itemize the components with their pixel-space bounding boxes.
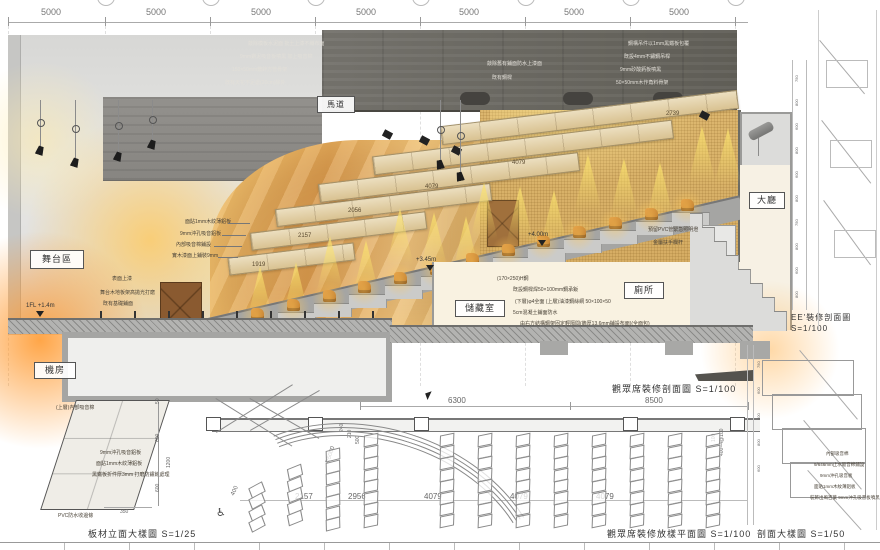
toilet-label-text: 廁所	[634, 285, 654, 295]
tick	[570, 402, 571, 410]
grid-tick	[105, 17, 106, 26]
grid-bubble-icon	[202, 0, 220, 6]
rigging-ring-icon	[72, 125, 80, 133]
plan-seat	[478, 513, 493, 528]
storage-room-label-text: 儲藏室	[465, 303, 495, 313]
plan-dim: 6300	[448, 397, 466, 405]
annotation: (上層)內部吸音棉	[56, 406, 94, 411]
stage-area-label: 舞台區	[30, 250, 84, 269]
detail-strip-line	[876, 10, 877, 530]
plan-seat	[706, 513, 721, 528]
panel-dim: 350	[120, 510, 128, 515]
projector-stand	[758, 138, 759, 156]
tick	[360, 402, 361, 410]
annotation: 預留PVC管緊急照明燈	[648, 228, 698, 233]
seating-step	[564, 239, 602, 253]
floor-post	[100, 311, 102, 318]
annotation: 9mm沖孔吸音板	[820, 474, 853, 479]
lobby-label-text: 大廳	[757, 195, 777, 205]
annotation: 金屬扶手欄杆	[653, 241, 683, 246]
ee-caption-line2: S=1/100	[791, 325, 828, 333]
seat-icon	[573, 226, 586, 238]
ee-dim-label: 800	[795, 195, 799, 202]
machine-room	[62, 332, 392, 402]
annotation: 9/646mm止水吸音棉鋪設	[814, 463, 864, 468]
detail-step-rect	[830, 140, 872, 168]
storage-room-label: 儲藏室	[455, 300, 505, 317]
annotation: 面貼1mm木紋薄鋁板	[96, 462, 142, 467]
detail50-dim-label: 600	[757, 387, 761, 394]
stage-area-label-text: 舞台區	[42, 254, 72, 264]
baffle-dim-label: 4079	[425, 184, 438, 190]
rigging-ring-icon	[457, 132, 465, 140]
level-mark-stage: 1FL +1.4m	[26, 303, 55, 309]
baffle-dim-label: 2739	[666, 111, 679, 117]
seat-icon	[287, 299, 300, 311]
plan-top-dim-line	[360, 406, 748, 407]
rigging-ring-icon	[115, 122, 123, 130]
seating-step	[528, 248, 566, 262]
downlight-fixture-icon	[460, 92, 490, 105]
ee-dim-label: 600	[795, 123, 799, 130]
annotation: 敲除舊有鋪面防水上漆面	[487, 62, 542, 67]
grid-tick	[210, 17, 211, 26]
baffle-dim-label: 2056	[348, 208, 361, 214]
annotation: PVC防水收邊條	[58, 514, 93, 519]
grid-bubble-icon	[307, 0, 325, 6]
leader-line	[228, 223, 250, 224]
grid-tick	[420, 17, 421, 26]
roof-wedge	[695, 370, 753, 381]
ee-dim-label: 600	[795, 267, 799, 274]
seating-step	[349, 294, 387, 308]
seating-step	[314, 303, 352, 317]
annotation: 敲除模板水泥面 批土上漆不織布面	[248, 42, 324, 47]
floor-post	[372, 311, 374, 318]
annotation: 既有基礎鋪面	[103, 302, 133, 307]
annotation: 150×50mm鍍鋅方管骨架	[232, 68, 287, 73]
grid-tick	[8, 17, 9, 26]
plan-dim: 8500	[645, 397, 663, 405]
grid-tick	[735, 17, 736, 26]
detail50-step	[772, 394, 862, 430]
annotation: 內部吸音棉鋪設	[176, 243, 211, 248]
floor-post	[202, 311, 204, 318]
detail-step-rect	[826, 60, 868, 88]
detail50-dim-label: 750	[757, 361, 761, 368]
grid-tick	[315, 17, 316, 26]
seat-icon	[502, 244, 515, 256]
floor-post	[304, 311, 306, 318]
annotation: 9mm沖孔吸音鋁板	[180, 232, 221, 237]
detail50-line	[753, 345, 754, 525]
floor-post	[270, 311, 272, 318]
plan-seat	[630, 513, 645, 528]
seat-icon	[323, 290, 336, 302]
tick	[748, 402, 749, 410]
seat-icon	[358, 281, 371, 293]
ee-caption-line1: EE'裝修剖面圖	[791, 314, 851, 322]
detail-step-rect	[834, 230, 876, 258]
baffle-dim-label: 4079	[512, 160, 525, 166]
rigging-ring-icon	[37, 119, 45, 127]
architectural-drawing-sheet: 5000500050005000500050005000 馬道 1919 215…	[0, 0, 880, 550]
grid-bubble-icon	[727, 0, 745, 6]
panel-dim: 50	[156, 398, 161, 404]
machine-room-label-text: 機房	[45, 365, 65, 375]
grid-dim-label: 5000	[356, 8, 376, 17]
floor-post	[134, 311, 136, 318]
detail50-caption: 剖面大樣圖 S=1/50	[757, 530, 845, 539]
annotation: 面貼1mm木紋薄鋁板	[185, 220, 231, 225]
annotation: 鋼構吊件以1mm黑鐵板包覆	[628, 42, 689, 47]
panel-dim: 600	[156, 484, 161, 492]
annotation: 9mm矽酸鈣板噴黑	[620, 68, 661, 73]
ee-dim-label: 800	[795, 99, 799, 106]
panel-dim-line	[104, 507, 152, 508]
seating-step	[385, 285, 423, 299]
lobby-label: 大廳	[749, 192, 785, 209]
grid-tick	[525, 17, 526, 26]
grid-bubble-icon	[412, 0, 430, 6]
rigging-ring-icon	[149, 116, 157, 124]
annotation: 內部吸音棉	[826, 452, 849, 457]
footing	[540, 341, 568, 355]
plan-caption: 觀眾席裝修放樣平面圖 S=1/100	[607, 530, 751, 539]
annotation: 面貼1mm木紋薄鋁板	[814, 485, 856, 490]
catwalk-label-text: 馬道	[327, 100, 345, 109]
seat-icon	[394, 272, 407, 284]
catwalk-label: 馬道	[317, 96, 355, 113]
annotation: (170×250)H鋼	[497, 277, 529, 282]
grid-dim-label: 5000	[251, 8, 271, 17]
level-triangle-icon	[426, 265, 434, 271]
lobby-stair-step	[774, 311, 787, 331]
panel-caption: 板材立面大樣圖 S=1/25	[88, 530, 196, 539]
plan-column	[730, 417, 745, 431]
grid-dim-label: 5000	[146, 8, 166, 17]
seating-step	[600, 230, 638, 244]
leader-line	[218, 257, 238, 258]
grid-bubble-icon	[517, 0, 535, 6]
leader-line	[214, 246, 242, 247]
detail-strip-line	[818, 10, 819, 330]
ee-strip-line	[806, 60, 807, 310]
grid-dim-label: 5000	[669, 8, 689, 17]
baffle-dim-label: 2157	[298, 233, 311, 239]
section-caption: 觀眾席裝修剖面圖 S=1/100	[612, 385, 736, 394]
plan-seat	[516, 513, 531, 528]
annotation: 9mm鑽泥吸音板噴黑 加上吸音棉	[240, 55, 313, 60]
rigging-ring-icon	[437, 126, 445, 134]
grid-tick	[630, 17, 631, 26]
plan-seat	[364, 513, 379, 528]
annotation: 既設4mm不鏽鋼吊桿	[624, 55, 670, 60]
grid-dim-line	[8, 22, 748, 23]
seat-icon	[645, 208, 658, 220]
annotation: 5cm混凝土鋪面防水	[513, 311, 557, 316]
annotation: 既有鋼樑	[492, 76, 512, 81]
floor-post	[236, 311, 238, 318]
spotlight-icon	[382, 129, 393, 139]
detail50-dim-label: 400	[757, 413, 761, 420]
floor-post	[168, 311, 170, 318]
level-mark-top: +4.00m	[528, 232, 548, 238]
footing	[665, 341, 693, 355]
plan-dim-rot: 400=4@100	[720, 429, 725, 456]
panel-dim: 1200	[167, 457, 172, 468]
plan-seat	[592, 513, 607, 528]
toilet-label: 廁所	[624, 282, 664, 299]
annotation: (下層)φ4全面 (上層)油漆鋼絲網 50×100×50	[515, 300, 611, 305]
foundation-slab	[390, 325, 753, 343]
detail50-step	[782, 428, 866, 464]
ee-dim-label: 800	[795, 291, 799, 298]
title-block-strip	[0, 542, 880, 550]
annotation: 既設鋼樑焊50×100mm鋼承鈑	[513, 288, 578, 293]
detail50-dim-label: 800	[757, 439, 761, 446]
downlight-fixture-icon	[563, 92, 593, 105]
annotation: 由右方結構鋼架固定輕隔間(牆厚13.6mm鋪設布面)(全面包)	[520, 322, 650, 327]
annotation: 表面上漆	[112, 277, 132, 282]
plan-seat	[668, 513, 683, 528]
ee-strip-line	[792, 60, 793, 310]
detail50-dim-label: 600	[757, 465, 761, 472]
grid-dim-label: 5000	[41, 8, 61, 17]
plan-seat	[554, 513, 569, 528]
machine-room-label: 機房	[34, 362, 76, 379]
ee-dim-label: 800	[795, 243, 799, 250]
grid-dim-label: 5000	[564, 8, 584, 17]
floor-post	[338, 311, 340, 318]
annotation: 既有天花不足處(20cm)除外	[225, 81, 286, 86]
annotation: 舞台木地板架高拋光打磨	[100, 291, 155, 296]
ee-dim-label: 800	[795, 147, 799, 154]
north-arrow-icon: ◤	[424, 389, 434, 402]
detail50-step	[762, 360, 854, 396]
ee-dim-label: 750	[795, 75, 799, 82]
seat-icon	[681, 199, 694, 211]
stage-left-wall	[8, 35, 21, 335]
annotation: 實木漆面上鋪裝9mm	[172, 254, 218, 259]
annotation: 9mm沖孔吸音鋁板	[100, 451, 141, 456]
annotation: 50×50mm木作角料骨架	[616, 81, 668, 86]
level-triangle-icon	[538, 240, 546, 246]
seat-icon	[609, 217, 622, 229]
grid-bubble-icon	[97, 0, 115, 6]
ee-dim-label: 600	[795, 171, 799, 178]
projection-room	[740, 112, 792, 169]
plan-column	[623, 417, 638, 431]
panel-dim: 600	[156, 434, 161, 442]
plan-column	[414, 417, 429, 431]
detail50-line	[747, 345, 748, 525]
level-mark-mid: +3.45m	[416, 257, 436, 263]
leader-line	[222, 235, 246, 236]
ee-dim-label: 750	[795, 219, 799, 226]
baffle-dim-label: 1919	[252, 262, 265, 268]
grid-dim-label: 5000	[459, 8, 479, 17]
plan-seat	[440, 513, 455, 528]
footing	[740, 341, 770, 359]
grid-bubble-icon	[622, 0, 640, 6]
level-triangle-icon	[36, 311, 44, 317]
annotation: 裝飾出風百葉 9mm沖孔吸音板噴黑	[810, 496, 880, 501]
